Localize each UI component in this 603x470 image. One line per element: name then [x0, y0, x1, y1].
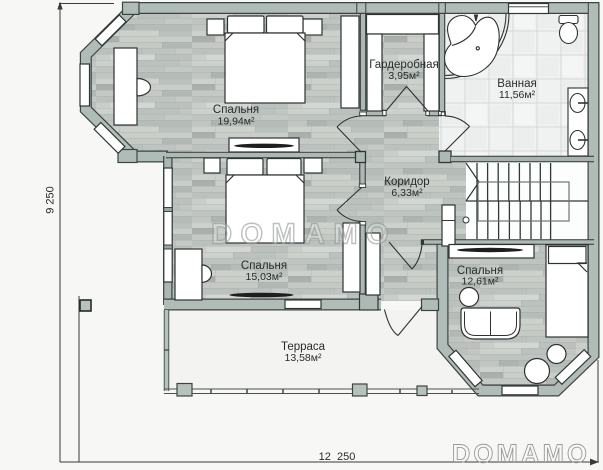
svg-text:6,33м²: 6,33м²	[391, 187, 423, 199]
svg-text:15,03м²: 15,03м²	[246, 271, 283, 283]
svg-text:12,61м²: 12,61м²	[462, 276, 499, 288]
svg-text:9 250: 9 250	[45, 186, 57, 214]
svg-text:Спальня: Спальня	[213, 104, 259, 116]
svg-text:11,56м²: 11,56м²	[499, 89, 536, 101]
svg-text:3,95м²: 3,95м²	[388, 70, 420, 82]
svg-text:DOMAMO: DOMAMO	[452, 441, 590, 469]
svg-text:12 250: 12 250	[319, 451, 356, 463]
svg-text:19,94м²: 19,94м²	[218, 116, 255, 128]
svg-text:DOMAMO: DOMAMO	[211, 219, 397, 251]
svg-text:13,58м²: 13,58м²	[285, 352, 322, 364]
